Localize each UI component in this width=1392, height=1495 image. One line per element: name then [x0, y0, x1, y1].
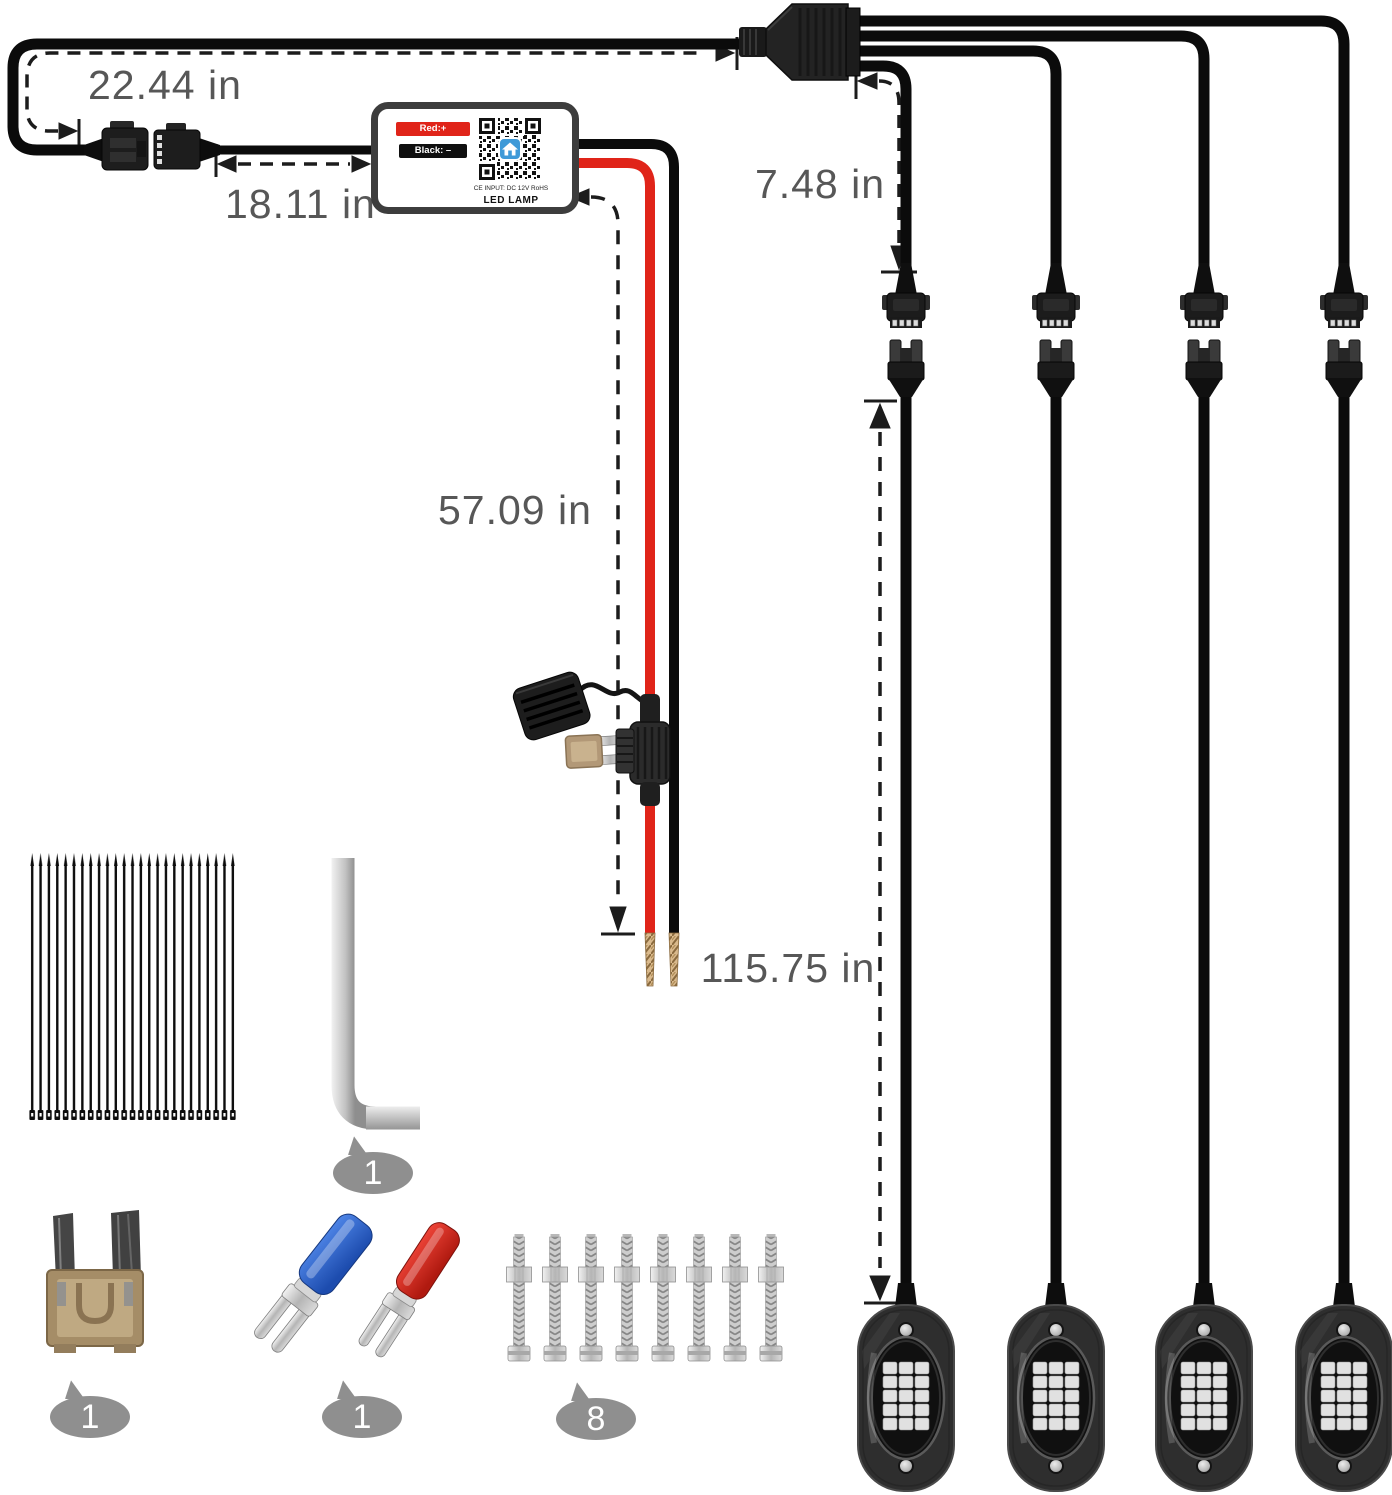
spade-terminal-blue — [250, 1209, 378, 1357]
power-wire-red — [575, 163, 650, 934]
connector-pair-3 — [1180, 263, 1228, 397]
mounting-screws — [507, 1234, 784, 1361]
dim-57-09 — [570, 189, 635, 934]
rock-light-pod-1 — [858, 1283, 954, 1491]
qr-code — [478, 117, 542, 181]
power-wires — [575, 144, 679, 986]
bare-wire-end-red — [645, 933, 655, 986]
rock-light-pod-2 — [1008, 1283, 1104, 1491]
rock-light-pod-4 — [1296, 1283, 1392, 1491]
rock-light-kit-wiring-diagram: 22.44 in 18.11 in 57.09 in 7.48 in 115.7… — [0, 0, 1392, 1495]
four-way-splitter — [739, 4, 860, 80]
bluetooth-controller: Red:+ Black: – — [371, 102, 579, 214]
dim-115-75 — [864, 401, 897, 1303]
count-badge-hex-key: 1 — [333, 1152, 413, 1194]
dimension-label-splitter-to-connector: 7.48 in — [750, 161, 890, 208]
diagram-canvas — [0, 0, 1392, 1495]
connector-pair-1 — [882, 263, 930, 397]
extension-cable-4 — [855, 21, 1344, 268]
dimension-label-power-lead-length: 57.09 in — [438, 487, 588, 534]
power-wire-black — [575, 144, 674, 934]
count-badge-blade-fuse: 1 — [50, 1396, 130, 1438]
black-wire-label: Black: – — [399, 144, 467, 158]
dimension-label-connector-to-pod: 115.75 in — [698, 945, 878, 992]
zip-ties — [28, 853, 237, 1126]
harness-male-connector — [84, 121, 148, 170]
extension-cable-2 — [855, 51, 1056, 268]
count-badge-terminals: 1 — [322, 1396, 402, 1438]
harness-female-connector — [154, 123, 220, 169]
fuse-holder-tether — [580, 685, 644, 702]
connector-pair-4 — [1320, 263, 1368, 397]
device-label: LED LAMP — [466, 195, 556, 206]
dimension-label-harness-loop: 22.44 in — [88, 62, 238, 109]
bare-wire-end-black — [669, 933, 679, 986]
dimension-label-connector-to-controller: 18.11 in — [225, 181, 375, 228]
smart-home-icon — [499, 138, 521, 160]
fuse-holder-cap — [511, 670, 592, 742]
blade-fuse-item — [47, 1210, 143, 1353]
rock-light-pod-3 — [1156, 1283, 1252, 1491]
certification-text: CE INPUT: DC 12V RoHS — [470, 185, 553, 191]
splitter-cables — [855, 21, 1344, 1292]
count-badge-screws: 8 — [556, 1398, 636, 1440]
red-wire-label: Red:+ — [396, 122, 470, 136]
hex-key — [343, 858, 420, 1118]
connector-pair-2 — [1032, 263, 1080, 397]
mini-fuse — [565, 733, 623, 768]
